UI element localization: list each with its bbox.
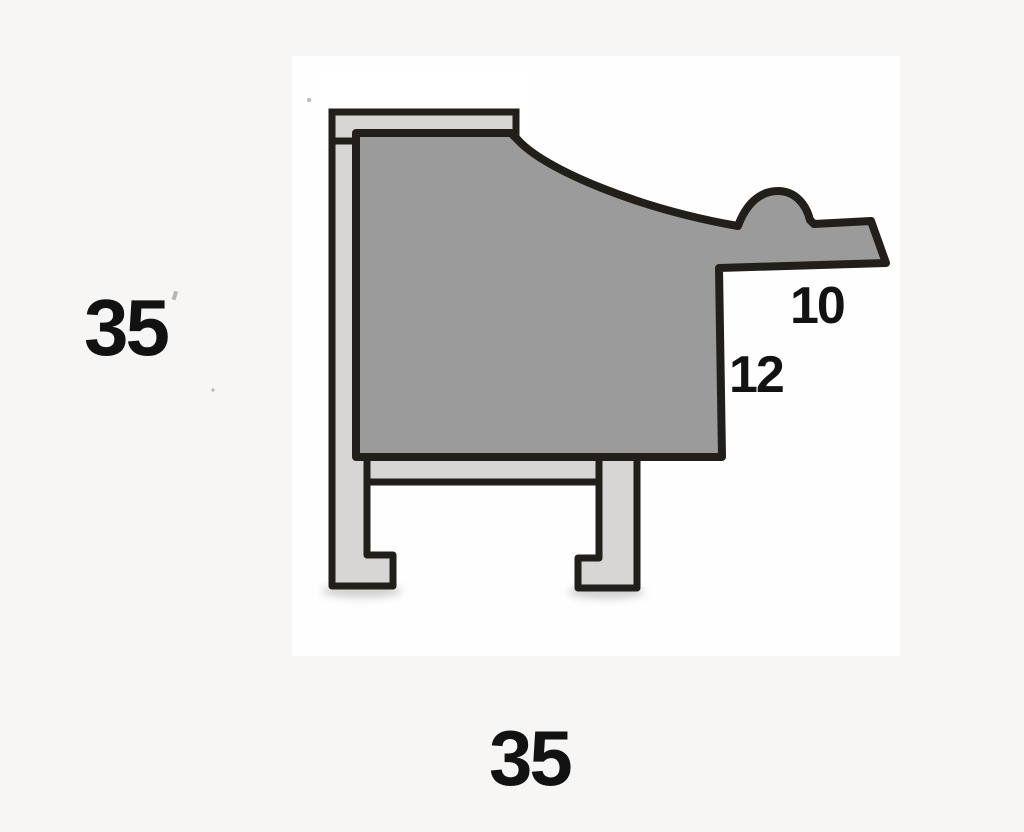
diagram-canvas: 35 35 10 12	[0, 0, 1024, 832]
scan-speck	[211, 388, 214, 391]
moulding-profile-drawing: 35 35 10 12	[0, 0, 1024, 832]
dimension-label-rebate-10: 10	[790, 277, 844, 335]
dimension-label-height: 35	[84, 283, 168, 372]
dimension-label-rebate-12: 12	[729, 346, 783, 404]
dimension-label-width: 35	[489, 714, 571, 802]
scan-speck	[307, 98, 311, 102]
